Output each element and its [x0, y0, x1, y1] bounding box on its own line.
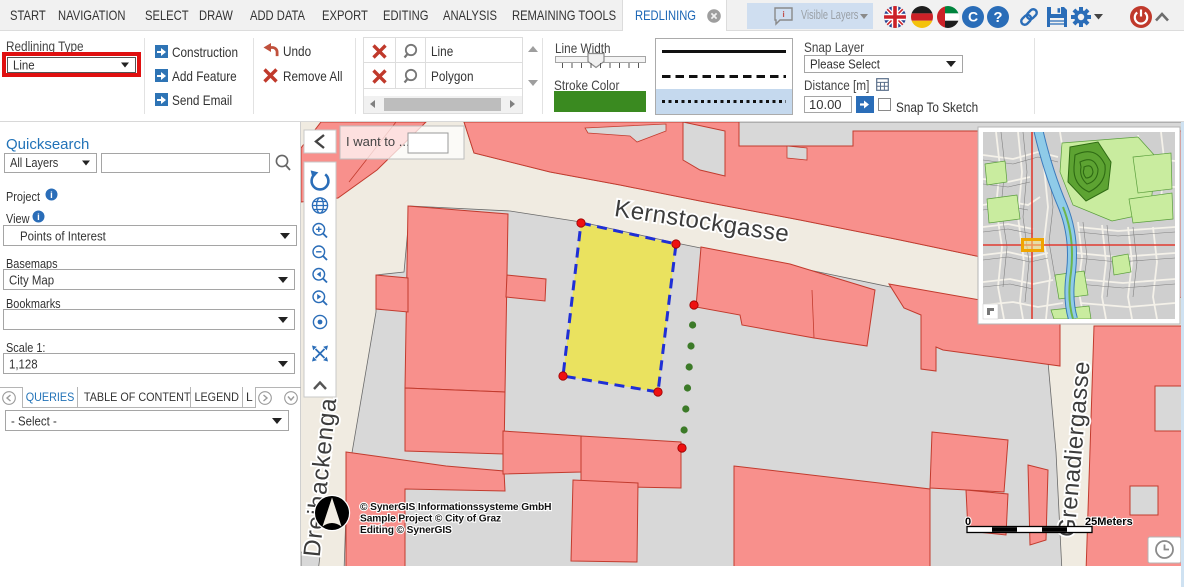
svg-text:C: C — [968, 9, 978, 25]
svg-text:I want to ...: I want to ... — [346, 134, 410, 149]
svg-text:i: i — [50, 190, 53, 201]
svg-text:i: i — [782, 9, 784, 19]
svg-text:Editing © SynerGIS: Editing © SynerGIS — [360, 525, 452, 536]
svg-text:© SynerGIS Informationssysteme: © SynerGIS Informationssysteme GmbH — [360, 502, 551, 513]
svg-text:i: i — [37, 212, 40, 223]
svg-text:Sample Project © City of Graz: Sample Project © City of Graz — [360, 514, 501, 525]
svg-text:?: ? — [993, 9, 1002, 26]
